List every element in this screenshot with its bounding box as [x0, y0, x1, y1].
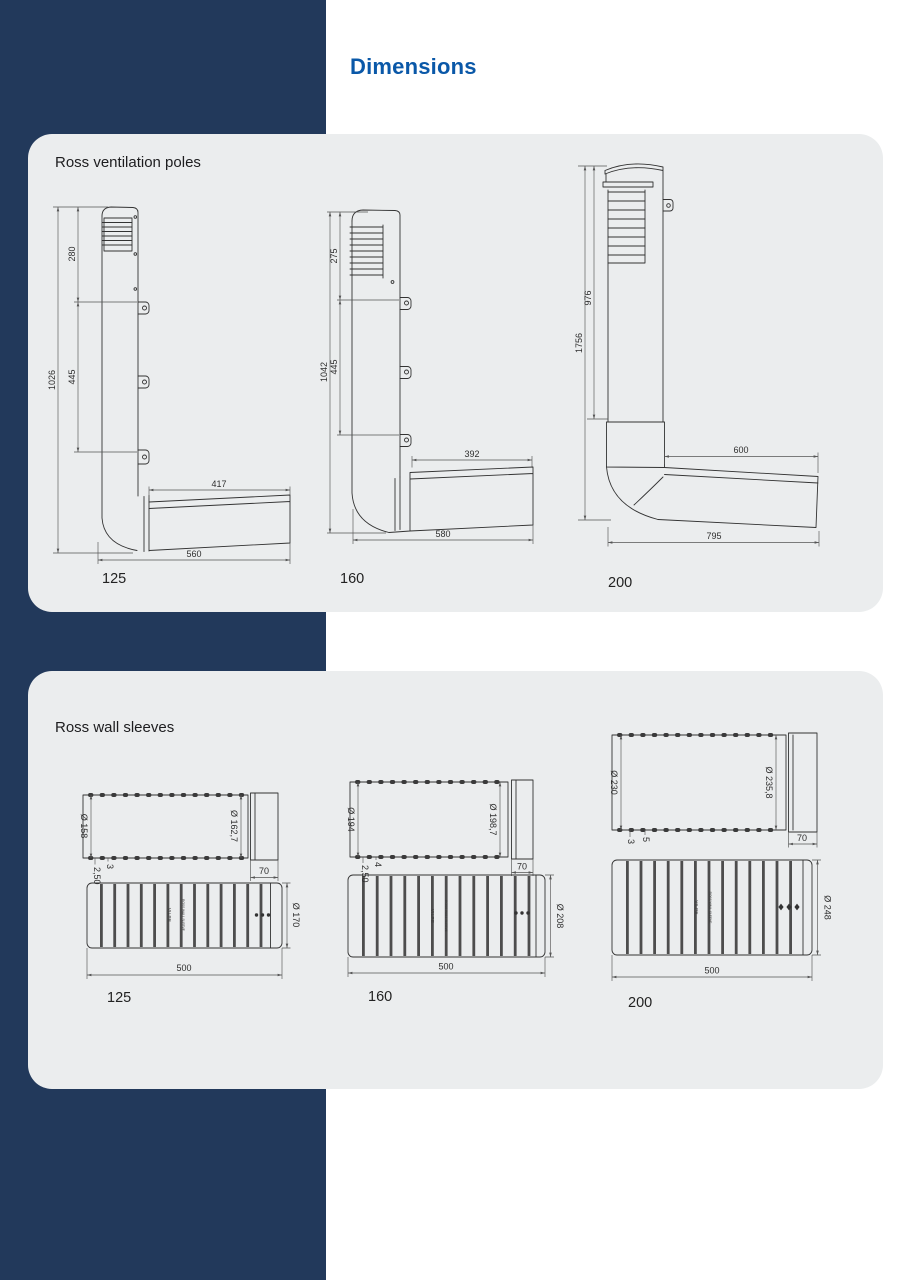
dim-pipe-diameter: Ø 230: [609, 770, 619, 795]
catalog-page: Dimensions Ross ventilation poles: [0, 0, 905, 1280]
dim-wall-thickness: 2,50: [360, 865, 370, 883]
sleeve-marking-text: ROSS WALL SLEEVE: [708, 892, 712, 924]
pole-160-outline: [350, 210, 533, 533]
sleeve-160-dimensions: [348, 782, 554, 977]
sleeve-200-ribbed-view: VILPE ROSS WALL SLEEVE: [612, 860, 812, 955]
dim-collar-diameter: Ø 162,7: [229, 810, 239, 842]
pole-200-outline: [603, 164, 818, 528]
dim-length: 500: [438, 962, 453, 972]
dim-rib-height: 4: [373, 862, 383, 867]
dim-outer-diameter: Ø 170: [291, 903, 301, 928]
dim-total-height: 1026: [47, 370, 57, 390]
sleeve-marking-brand: VILPE: [167, 908, 172, 922]
sleeve-marking-brand: VILPE: [694, 900, 699, 914]
sleeve-marking-text: ROSS WALL SLEEVE: [444, 900, 448, 932]
size-label: 160: [368, 989, 392, 1005]
size-label: 125: [102, 571, 126, 587]
dim-length: 500: [176, 963, 191, 973]
dim-upper: 976: [583, 290, 593, 305]
ventilation-poles-panel: Ross ventilation poles: [28, 134, 883, 612]
dim-lower: 445: [67, 369, 77, 384]
dim-length: 500: [704, 966, 719, 976]
wall-sleeves-panel: Ross wall sleeves: [28, 671, 883, 1089]
size-label: 200: [628, 995, 652, 1011]
pole-125-dimensions: [53, 207, 290, 564]
dim-lower: 445: [329, 359, 339, 374]
sleeve-marking-brand: VILPE: [430, 909, 435, 923]
sleeve-200-side-view: [612, 733, 817, 832]
dim-collar-diameter: Ø 235,8: [764, 766, 774, 798]
pole-200-dimensions: [578, 166, 819, 547]
dim-wall-thickness: 2,50: [92, 867, 102, 885]
sleeve-125-ribbed-view: VILPE ROSS WALL SLEEVE: [87, 883, 282, 948]
dim-outer-diameter: Ø 248: [823, 895, 833, 920]
pole-125-outline: [102, 207, 290, 552]
sleeve-160-side-view: [350, 780, 533, 859]
dim-pipe-diameter: Ø 194: [346, 807, 356, 832]
dim-wall-thickness: 3: [626, 839, 636, 844]
sleeve-160-ribbed-view: VILPE ROSS WALL SLEEVE: [348, 875, 545, 957]
pole-160-dimensions: [327, 212, 533, 544]
size-label: 125: [107, 990, 131, 1006]
drawing-pole-160: 1042 275 445 392 580 160: [320, 194, 560, 594]
dim-upper: 275: [329, 248, 339, 263]
dim-collar-diameter: Ø 198,7: [488, 803, 498, 835]
page-title: Dimensions: [350, 54, 477, 80]
dim-duct-bottom: 580: [435, 529, 450, 539]
sleeve-marking-text: ROSS WALL SLEEVE: [181, 899, 185, 931]
drawing-pole-125: 1026 280 445 417 560 125: [38, 194, 308, 594]
dim-duct-top: 392: [464, 449, 479, 459]
dim-total-height: 1756: [574, 333, 584, 353]
size-label: 160: [340, 571, 364, 587]
drawing-pole-200: 1756 976 600 795 200: [575, 150, 835, 595]
dim-pipe-diameter: Ø 158: [79, 814, 89, 839]
drawing-sleeve-125: VILPE ROSS WALL SLEEVE Ø 158 Ø 162,7 2,5…: [60, 780, 310, 1010]
dim-upper: 280: [67, 246, 77, 261]
dim-total-height: 1042: [319, 362, 329, 382]
dim-rib-height: 5: [641, 837, 651, 842]
sleeve-125-side-view: [83, 793, 278, 860]
dim-duct-bottom: 560: [186, 549, 201, 559]
drawing-sleeve-200: VILPE ROSS WALL SLEEVE Ø 230 Ø 235,8 3 5…: [595, 725, 870, 1015]
dim-duct-top: 600: [733, 445, 748, 455]
section-title-poles: Ross ventilation poles: [55, 154, 201, 171]
size-label: 200: [608, 575, 632, 591]
dim-collar-length: 70: [797, 833, 807, 843]
dim-collar-length: 70: [259, 866, 269, 876]
dim-outer-diameter: Ø 208: [555, 904, 565, 929]
dim-duct-bottom: 795: [706, 531, 721, 541]
drawing-sleeve-160: VILPE ROSS WALL SLEEVE Ø 194 Ø 198,7 2,5…: [330, 770, 580, 1010]
dim-duct-top: 417: [211, 479, 226, 489]
dim-rib-height: 3: [105, 864, 115, 869]
dim-collar-length: 70: [517, 862, 527, 872]
section-title-sleeves: Ross wall sleeves: [55, 719, 174, 736]
